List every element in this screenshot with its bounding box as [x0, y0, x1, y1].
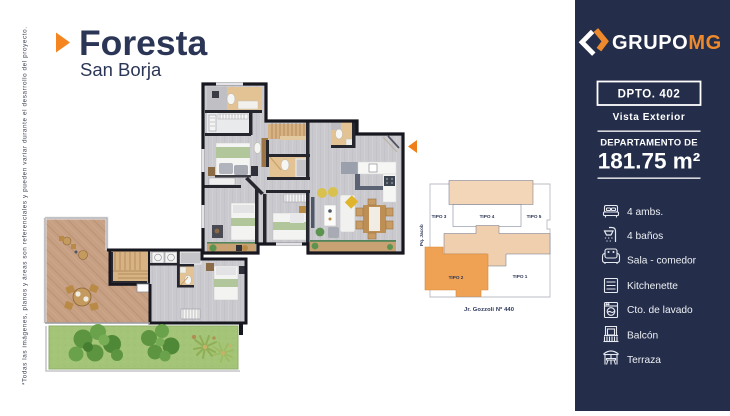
svg-text:TIPO 5: TIPO 5 — [527, 214, 542, 219]
svg-text:Kitchenette: Kitchenette — [627, 281, 678, 292]
svg-text:Sala - comedor: Sala - comedor — [627, 256, 697, 267]
svg-text:Vista Exterior: Vista Exterior — [613, 112, 686, 123]
svg-text:Cto. de lavado: Cto. de lavado — [627, 305, 693, 316]
svg-text:DEPARTAMENTO DE: DEPARTAMENTO DE — [600, 138, 697, 149]
svg-text:181.75 m²: 181.75 m² — [598, 149, 701, 174]
svg-text:Jr. Gozzoli Nº 440: Jr. Gozzoli Nº 440 — [464, 307, 514, 313]
svg-text:Terraza: Terraza — [627, 355, 661, 366]
svg-text:TIPO 3: TIPO 3 — [432, 214, 447, 219]
svg-text:4 ambs.: 4 ambs. — [627, 207, 663, 218]
svg-text:Balcón: Balcón — [627, 331, 658, 342]
svg-text:*Todas las imágenes, planos y: *Todas las imágenes, planos y áreas son … — [22, 27, 29, 385]
svg-text:Pq. Jacob: Pq. Jacob — [419, 224, 424, 246]
svg-text:Foresta: Foresta — [79, 23, 207, 63]
svg-text:4 baños: 4 baños — [627, 231, 663, 242]
svg-text:DPTO. 402: DPTO. 402 — [618, 89, 681, 101]
svg-text:San Borja: San Borja — [80, 59, 162, 80]
svg-text:GRUPOMG: GRUPOMG — [612, 32, 722, 54]
svg-text:TIPO 1: TIPO 1 — [513, 274, 528, 279]
svg-text:TIPO 2: TIPO 2 — [449, 275, 464, 280]
svg-text:TIPO 4: TIPO 4 — [480, 214, 495, 219]
